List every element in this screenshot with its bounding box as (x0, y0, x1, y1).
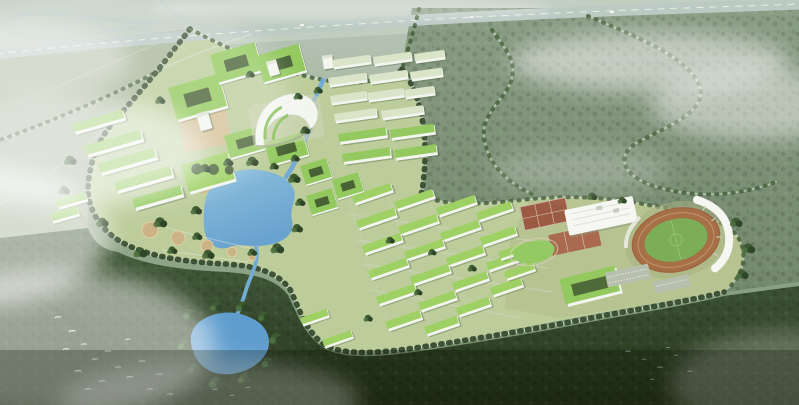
vehicle (610, 11, 614, 13)
aerial-rendering (0, 0, 799, 405)
masterplan-scene (0, 0, 799, 405)
cloud (490, 148, 670, 192)
vehicle (300, 24, 304, 26)
bottom-vignette (0, 350, 799, 405)
